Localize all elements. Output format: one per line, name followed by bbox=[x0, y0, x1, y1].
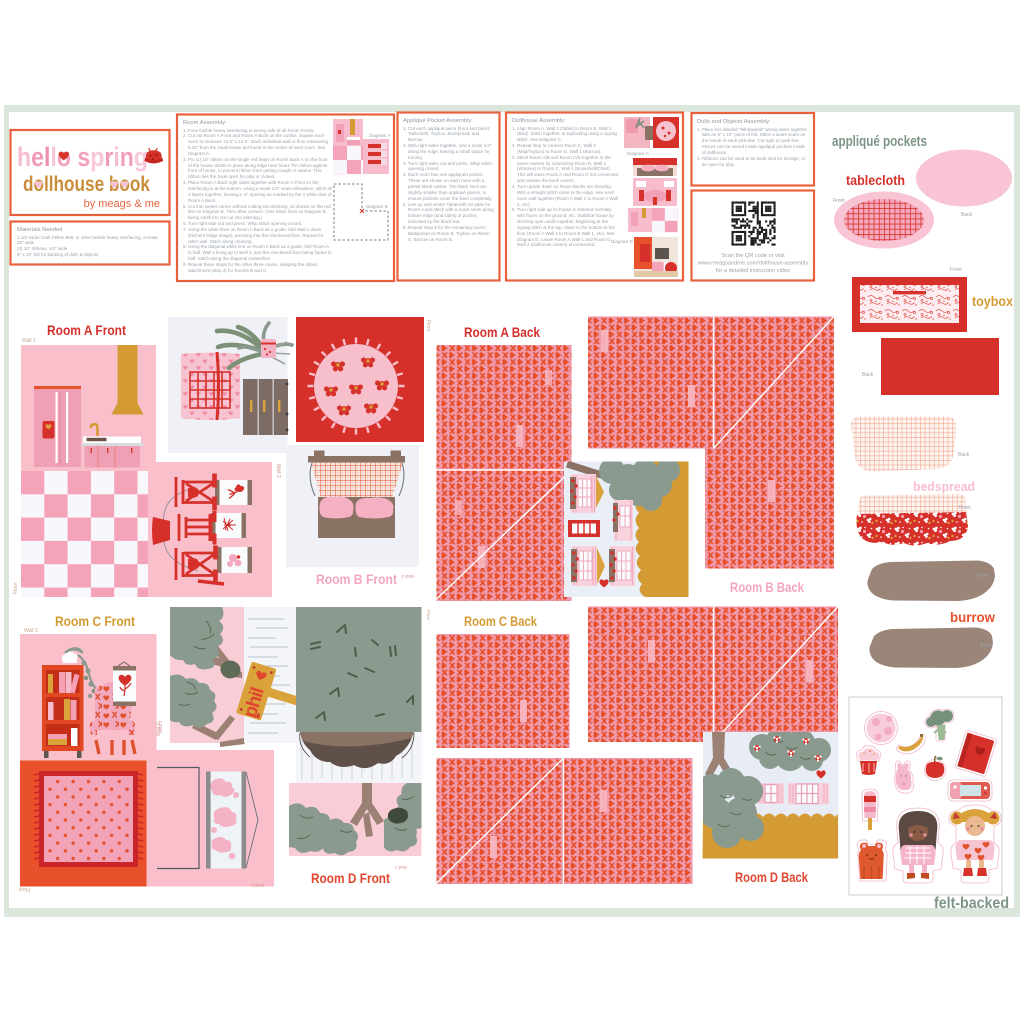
svg-text:Front: Front bbox=[959, 505, 971, 511]
svg-text:Wall 2: Wall 2 bbox=[275, 464, 281, 478]
svg-text:Wall 2: Wall 2 bbox=[158, 720, 163, 733]
svg-text:tablecloth: tablecloth bbox=[846, 172, 905, 188]
svg-text:Room D Back: Room D Back bbox=[735, 869, 808, 885]
svg-text:Wall 1: Wall 1 bbox=[394, 865, 407, 870]
svg-text:toybox: toybox bbox=[972, 293, 1013, 309]
svg-text:Room B Front: Room B Front bbox=[316, 571, 397, 587]
svg-text:Wall 2: Wall 2 bbox=[401, 574, 414, 579]
svg-text:Room A Front: Room A Front bbox=[47, 322, 126, 338]
svg-text:Floor: Floor bbox=[13, 582, 19, 594]
svg-text:Floor: Floor bbox=[425, 320, 431, 332]
svg-text:Back: Back bbox=[980, 643, 992, 649]
svg-text:Room B Back: Room B Back bbox=[730, 579, 804, 595]
svg-text:felt-backed: felt-backed bbox=[934, 895, 1009, 912]
svg-text:appliqué pockets: appliqué pockets bbox=[832, 133, 927, 150]
svg-text:Back: Back bbox=[961, 212, 973, 218]
svg-text:Room C Back: Room C Back bbox=[464, 613, 537, 629]
svg-text:Scan the QR code or visit: Scan the QR code or visit bbox=[721, 253, 785, 259]
svg-text:Front: Front bbox=[977, 573, 989, 579]
svg-text:Wall 1: Wall 1 bbox=[22, 338, 36, 344]
svg-text:Diagram C: Diagram C bbox=[627, 151, 650, 156]
svg-text:by meags & me: by meags & me bbox=[84, 198, 160, 210]
svg-text:Room C Front: Room C Front bbox=[55, 613, 135, 629]
svg-text:burrow: burrow bbox=[950, 609, 995, 625]
svg-text:Floor: Floor bbox=[426, 610, 431, 621]
svg-text:Front: Front bbox=[950, 267, 962, 273]
svg-text:bedspread: bedspread bbox=[913, 480, 975, 494]
svg-text:Wall 1: Wall 1 bbox=[24, 628, 38, 634]
svg-text:hello spring: hello spring bbox=[17, 142, 148, 172]
svg-text:Diagram B: Diagram B bbox=[366, 204, 388, 209]
svg-text:Room A Back: Room A Back bbox=[464, 324, 540, 340]
svg-text:for a detailed instruction vid: for a detailed instruction video bbox=[716, 268, 790, 274]
svg-text:Diagram A: Diagram A bbox=[369, 133, 391, 138]
svg-text:Back: Back bbox=[958, 452, 970, 458]
svg-text:Back: Back bbox=[862, 372, 874, 378]
svg-text:Wall 2: Wall 2 bbox=[251, 883, 264, 888]
svg-text:Floor: Floor bbox=[18, 886, 30, 892]
svg-text:Room D Front: Room D Front bbox=[311, 870, 390, 886]
svg-text:Front: Front bbox=[833, 198, 845, 204]
svg-text:www.meagsandme.com/dollhouse-a: www.meagsandme.com/dollhouse-assembly bbox=[697, 261, 809, 267]
